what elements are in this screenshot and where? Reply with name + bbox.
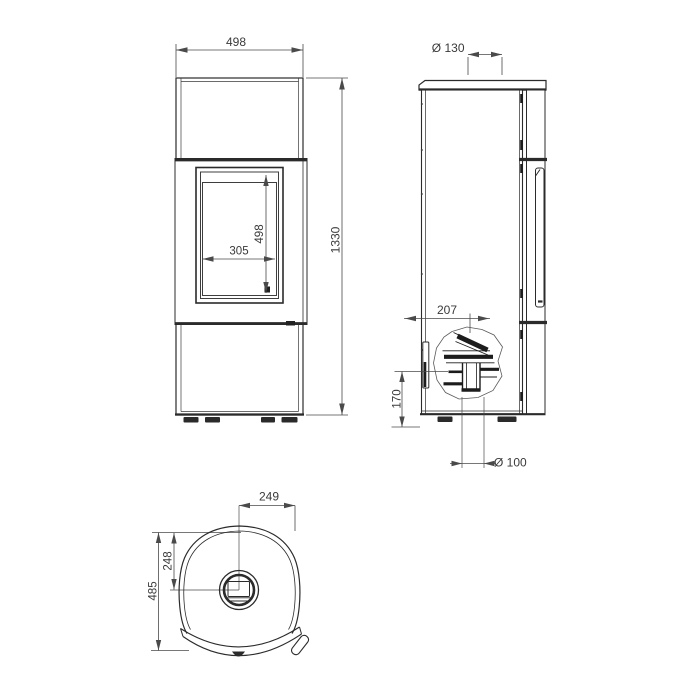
top-shell-inner: [184, 531, 295, 630]
front-width-label: 498: [226, 35, 246, 49]
arrow-right-icon: [491, 52, 502, 57]
arrow-down-icon: [156, 640, 161, 651]
arrow-down-icon: [339, 404, 345, 416]
arrow-up-icon: [171, 533, 176, 544]
arrow-up-icon: [399, 372, 404, 383]
arrow-right-icon: [292, 47, 304, 53]
arrow-down-icon: [171, 579, 176, 590]
top-shell-outer: [179, 526, 300, 634]
front-door-band: [181, 627, 302, 656]
arrow-right-icon: [452, 461, 463, 466]
arrow-up-icon: [339, 78, 345, 90]
arrow-up-icon: [156, 533, 161, 544]
side-feet: [438, 417, 517, 423]
dim-flue-collar: Ø 130: [432, 41, 502, 75]
dim-front-overall-height: 1330: [306, 78, 348, 415]
dim-front-overall-width: 498: [176, 35, 303, 77]
top-view: 249 248 485: [148, 490, 311, 657]
arrow-left-icon: [405, 316, 416, 321]
overall-depth-label: 485: [148, 581, 160, 600]
front-view: 498 305: [175, 35, 348, 423]
stove-dimension-drawing: 498 305: [0, 0, 700, 700]
arrow-right-icon: [284, 503, 295, 508]
arrow-left-icon: [468, 52, 479, 57]
back-to-flue-center-label: 248: [163, 551, 175, 570]
dim-back-to-flue-center: 248: [163, 533, 177, 590]
technical-drawing-page: 498 305: [0, 0, 700, 700]
door-hinge-mark: [286, 321, 295, 326]
rear-outlet-offset-label: 207: [437, 303, 457, 317]
flue-center-to-side-label: 249: [259, 490, 279, 504]
arrow-left-icon: [239, 503, 250, 508]
front-feet: [184, 417, 298, 423]
dim-flue-center-to-side: 249: [239, 490, 295, 532]
arrow-down-icon: [399, 417, 404, 428]
rear-outlet-height-label: 170: [392, 389, 404, 408]
side-body: [422, 90, 523, 414]
side-view: Ø 130: [392, 41, 548, 470]
floor-outlet-label: Ø 100: [494, 456, 527, 470]
arrow-left-icon: [484, 461, 495, 466]
door-handle-top: [290, 634, 310, 657]
front-height-label: 1330: [329, 226, 343, 253]
flue-collar-label: Ø 130: [432, 41, 465, 55]
shield-air-slot: [536, 168, 545, 307]
arrow-left-icon: [176, 47, 188, 53]
glass-width-label: 305: [229, 246, 248, 258]
glass-height-label: 498: [254, 224, 266, 243]
dim-overall-depth: 485: [148, 533, 162, 651]
